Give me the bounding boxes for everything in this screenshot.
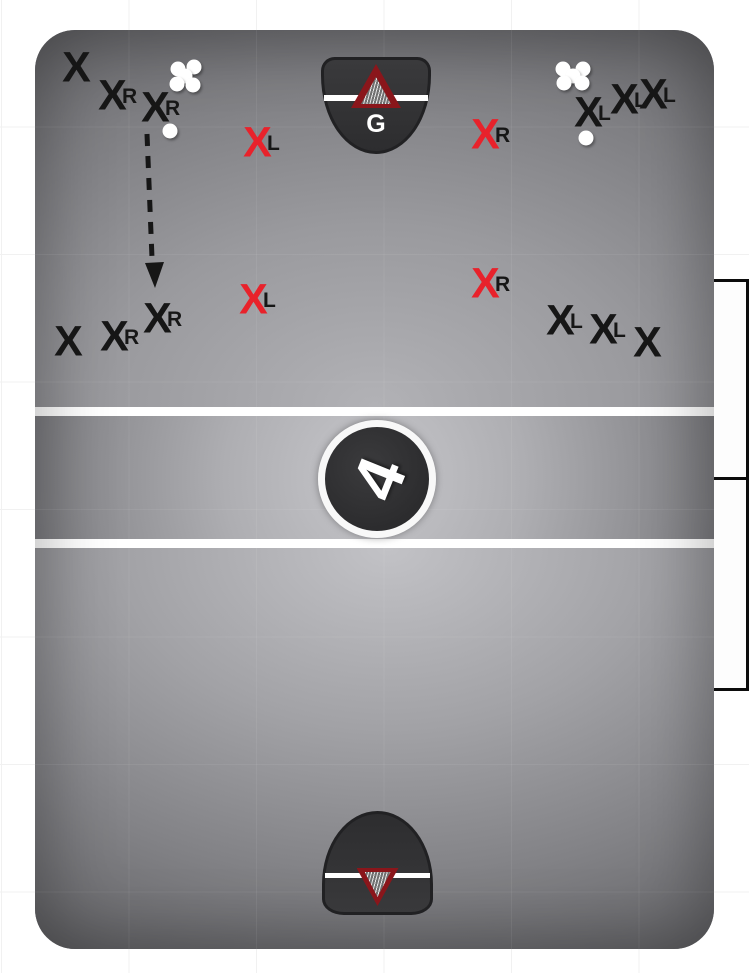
handedness-label: L [613, 320, 626, 341]
net-mesh [361, 77, 391, 104]
restraining-line-bottom [35, 539, 714, 548]
center-logo: 4 [341, 449, 418, 510]
handedness-label: L [267, 133, 280, 154]
x-glyph: X [62, 47, 90, 90]
ball-marker[interactable] [170, 77, 185, 92]
handedness-label: L [263, 290, 276, 311]
net-mesh [365, 872, 391, 897]
x-glyph: X [633, 322, 661, 365]
handedness-label: R [495, 274, 510, 295]
ball-marker[interactable] [557, 76, 572, 91]
handedness-label: L [570, 311, 583, 332]
bench-box-bottom [714, 480, 749, 691]
handedness-label: R [495, 125, 510, 146]
x-glyph: X [54, 321, 82, 364]
center-circle: 4 [318, 420, 436, 538]
goalie-label: G [324, 112, 428, 137]
restraining-line-top [35, 407, 714, 416]
handedness-label: L [598, 103, 611, 124]
rink: 4 G [35, 30, 714, 949]
handedness-label: L [663, 85, 676, 106]
drill-board: 4 G XXRXRXLXRXLXLXLXLXRXRXRXXLXLX [0, 0, 749, 973]
handedness-label: R [165, 98, 180, 119]
handedness-label: R [167, 309, 182, 330]
bench-box-top [714, 279, 749, 480]
handedness-label: R [124, 327, 139, 348]
ball-marker[interactable] [575, 76, 590, 91]
ball-marker[interactable] [163, 124, 178, 139]
ball-marker[interactable] [579, 131, 594, 146]
goal-top-net-icon [351, 64, 401, 108]
goal-bottom-net-icon [357, 868, 399, 906]
handedness-label: R [122, 86, 137, 107]
ball-marker[interactable] [186, 78, 201, 93]
